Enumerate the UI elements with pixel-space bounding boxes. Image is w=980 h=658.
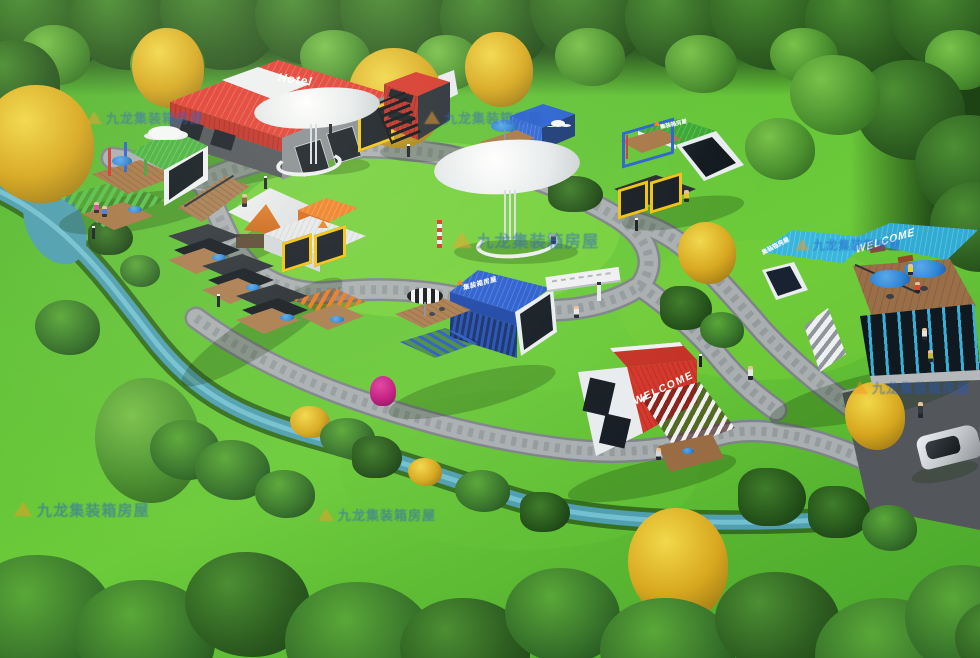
black-bollard [699, 354, 702, 367]
person [656, 448, 661, 460]
watermark-text: 九龙集装箱房屋 [477, 228, 600, 252]
watermark: 九龙集装箱房屋 [86, 108, 204, 127]
watermark-text: 九龙集装箱房屋 [813, 236, 901, 253]
person [574, 306, 579, 318]
watermark-logo-icon [318, 508, 334, 521]
person [915, 282, 920, 293]
white-bollard [597, 282, 601, 301]
striped-bollard [437, 220, 442, 248]
black-bollard [92, 226, 95, 239]
watermark-text: 九龙集装箱房屋 [37, 498, 150, 520]
overlay-layer: 九龙集装箱房屋九龙集装箱房屋九龙集装箱房屋九龙集装箱房屋九龙集装箱房屋九龙集装箱… [0, 0, 980, 658]
watermark: 九龙集装箱房屋 [852, 378, 970, 397]
watermark: 九龙集装箱房屋 [452, 228, 600, 252]
watermark: 九龙集装箱房屋 [795, 236, 901, 253]
watermark: 九龙集装箱房屋 [14, 498, 150, 520]
watermark: 九龙集装箱房屋 [318, 505, 436, 524]
person [928, 350, 933, 362]
black-bollard [217, 294, 220, 307]
watermark-logo-icon [86, 111, 102, 124]
person [102, 206, 107, 217]
black-bollard [407, 144, 410, 157]
watermark-logo-icon [424, 111, 440, 124]
black-bollard [635, 218, 638, 231]
watermark-text: 九龙集装箱房屋 [106, 108, 204, 127]
watermark-logo-icon [452, 232, 472, 248]
watermark-text: 九龙集装箱房屋 [872, 378, 970, 397]
watermark-logo-icon [14, 501, 32, 516]
watermark-text: 九龙集装箱房屋 [444, 108, 542, 127]
person [908, 264, 913, 275]
black-bollard [264, 176, 267, 189]
meditating-statue [370, 376, 396, 406]
person [94, 202, 99, 213]
person [918, 402, 923, 418]
watermark: 九龙集装箱房屋 [424, 108, 542, 127]
person [748, 366, 753, 380]
watermark-text: 九龙集装箱房屋 [338, 505, 436, 524]
watermark-logo-icon [795, 239, 809, 251]
person [684, 190, 689, 202]
watermark-logo-icon [852, 381, 868, 394]
person [922, 328, 927, 340]
black-bollard [329, 122, 332, 135]
container-park-rendering: Hotel [0, 0, 980, 658]
person [242, 194, 247, 207]
